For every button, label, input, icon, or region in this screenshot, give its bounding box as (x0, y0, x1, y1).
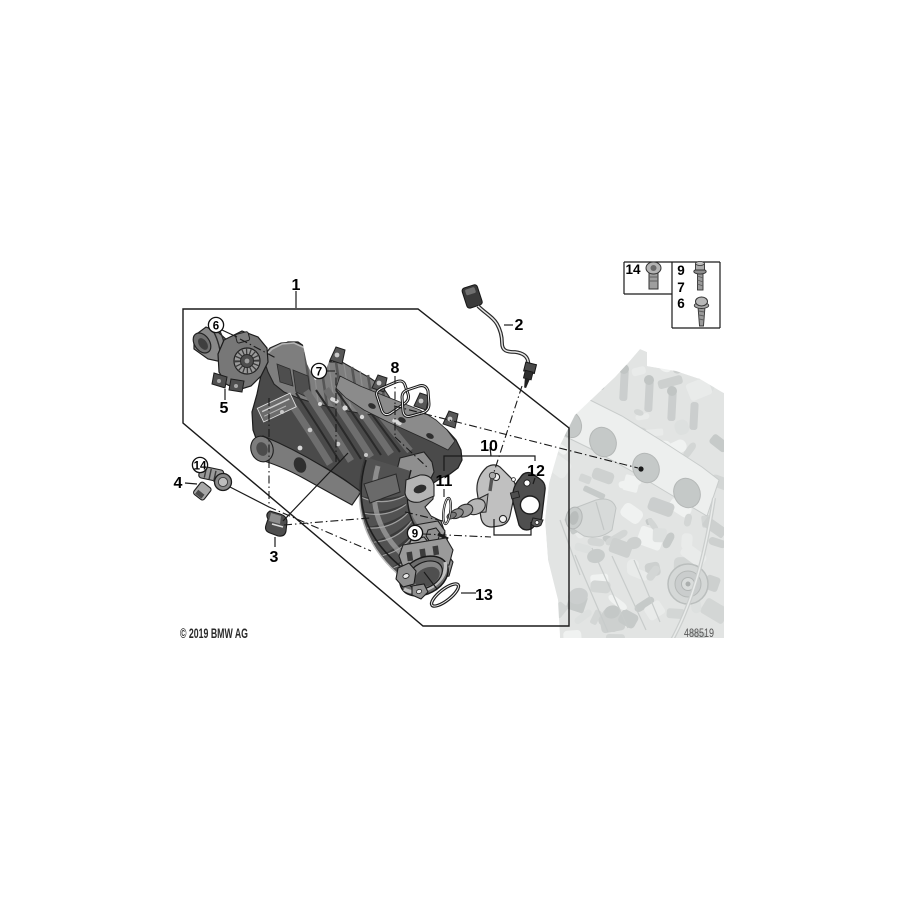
svg-text:6: 6 (677, 296, 685, 311)
svg-text:11: 11 (436, 473, 453, 490)
svg-text:2: 2 (515, 317, 524, 334)
svg-text:3: 3 (270, 549, 279, 566)
svg-text:© 2019 BMW AG: © 2019 BMW AG (180, 626, 248, 641)
svg-text:7: 7 (316, 367, 322, 379)
svg-text:488519: 488519 (684, 628, 714, 640)
svg-text:14: 14 (194, 461, 207, 473)
svg-text:10: 10 (480, 438, 498, 455)
svg-text:1: 1 (292, 277, 301, 294)
svg-text:5: 5 (220, 400, 229, 417)
svg-text:8: 8 (391, 360, 400, 377)
svg-text:12: 12 (527, 463, 545, 480)
svg-text:6: 6 (213, 321, 219, 333)
svg-text:9: 9 (412, 529, 418, 541)
svg-text:9: 9 (677, 263, 685, 278)
svg-text:4: 4 (174, 475, 183, 492)
svg-text:7: 7 (677, 280, 685, 295)
svg-text:14: 14 (625, 262, 641, 277)
svg-text:13: 13 (475, 587, 493, 604)
